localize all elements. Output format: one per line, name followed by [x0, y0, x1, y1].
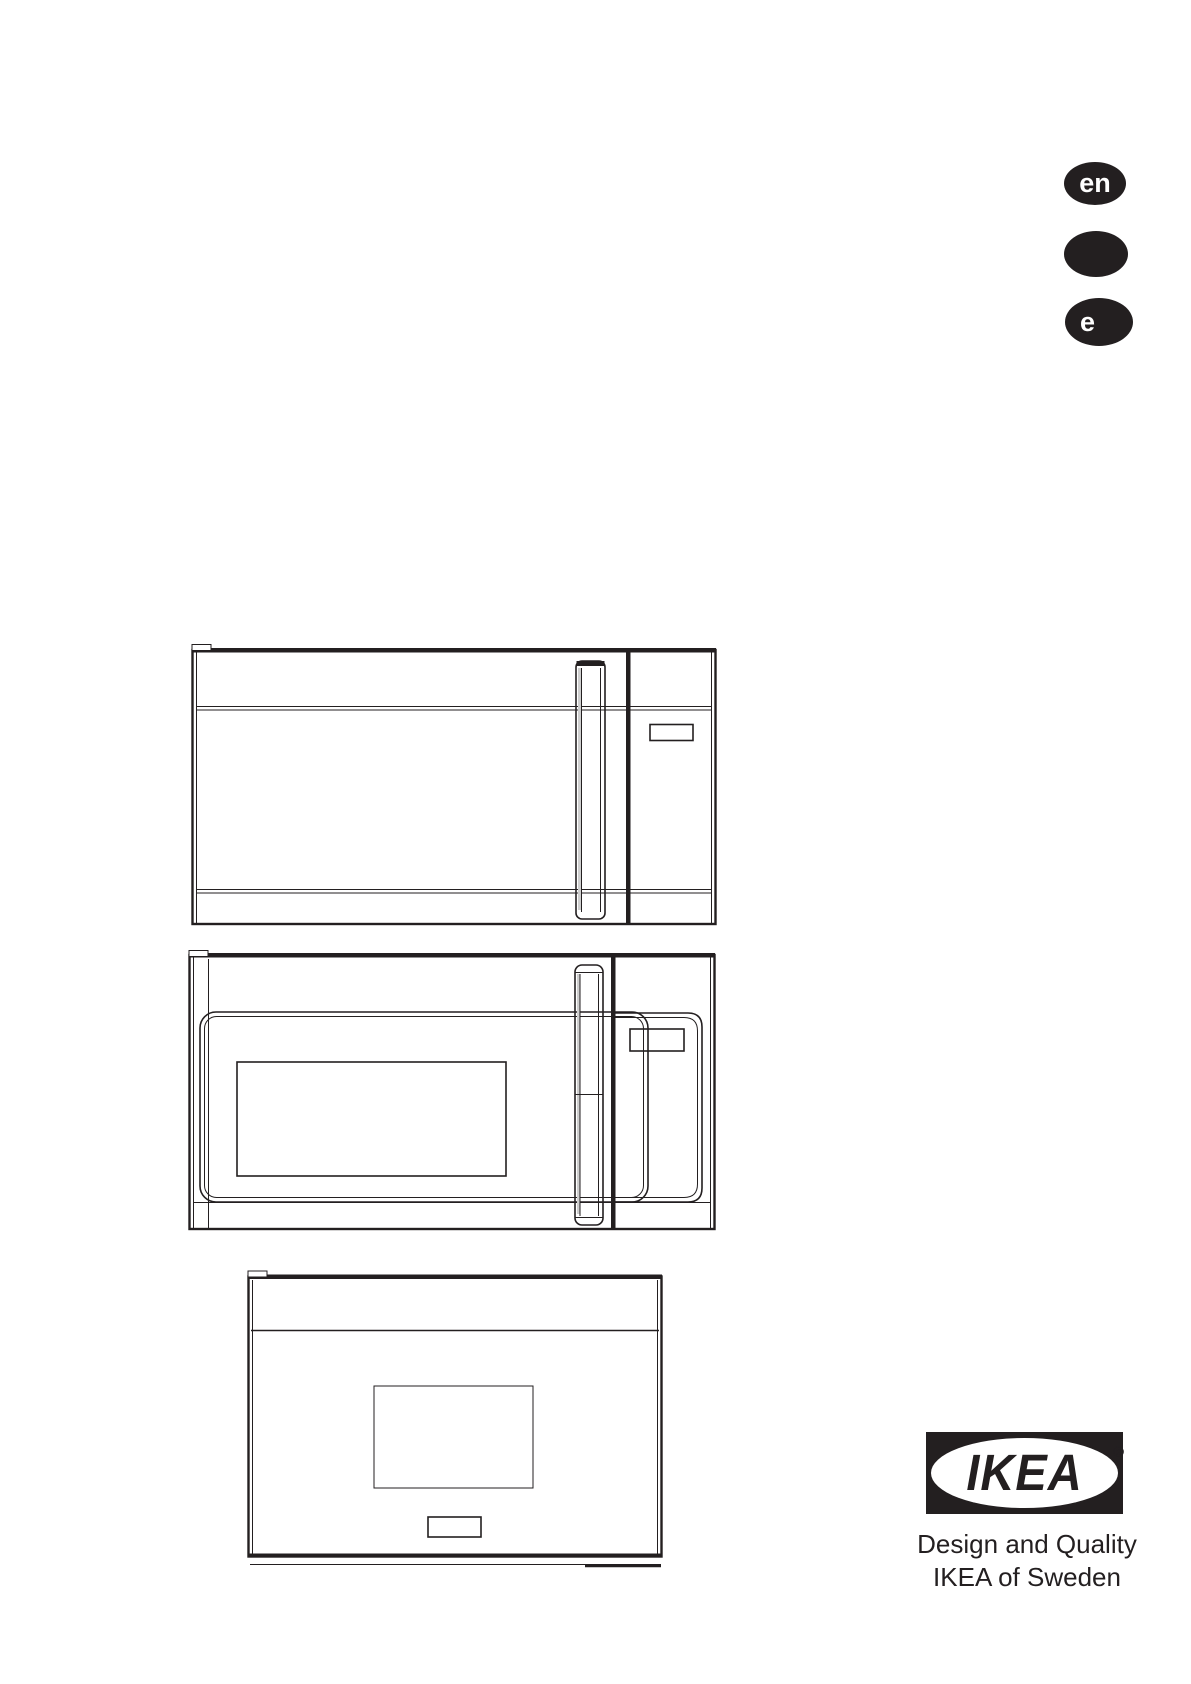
ikea-wordmark: IKEA — [966, 1442, 1082, 1504]
door-window-2 — [237, 1062, 506, 1176]
language-badge-e: e — [1065, 298, 1133, 346]
tagline-line1: Design and Quality — [899, 1528, 1155, 1561]
language-badge-blank — [1064, 231, 1128, 277]
door-handle-1 — [576, 661, 605, 919]
microwave-illustration-1 — [192, 645, 716, 925]
panel-divider-2 — [611, 955, 616, 1229]
door-window-3 — [374, 1386, 533, 1488]
tagline-line2: IKEA of Sweden — [899, 1561, 1155, 1594]
panel-divider-1 — [626, 650, 631, 924]
language-badge-en: en — [1064, 162, 1126, 205]
language-badge-en-label: en — [1079, 170, 1111, 197]
ikea-logo: IKEA ® — [926, 1432, 1123, 1514]
display-window-2 — [630, 1029, 684, 1051]
control-panel-2 — [616, 1013, 703, 1202]
ikea-logo-ellipse: IKEA — [931, 1438, 1118, 1508]
registered-trademark-icon: ® — [1113, 1444, 1124, 1461]
manual-cover-page: en e IKEA ® Design and Quality IKEA of S… — [0, 0, 1191, 1684]
footer-tagline: Design and Quality IKEA of Sweden — [899, 1528, 1155, 1594]
language-badge-e-label: e — [1080, 309, 1095, 336]
microwave-illustration-2 — [189, 951, 715, 1230]
display-window-1 — [650, 725, 693, 741]
door-2 — [200, 1012, 648, 1202]
control-button-3 — [428, 1517, 481, 1537]
door-handle-2 — [575, 965, 603, 1225]
microwave-illustration-3 — [248, 1271, 662, 1566]
